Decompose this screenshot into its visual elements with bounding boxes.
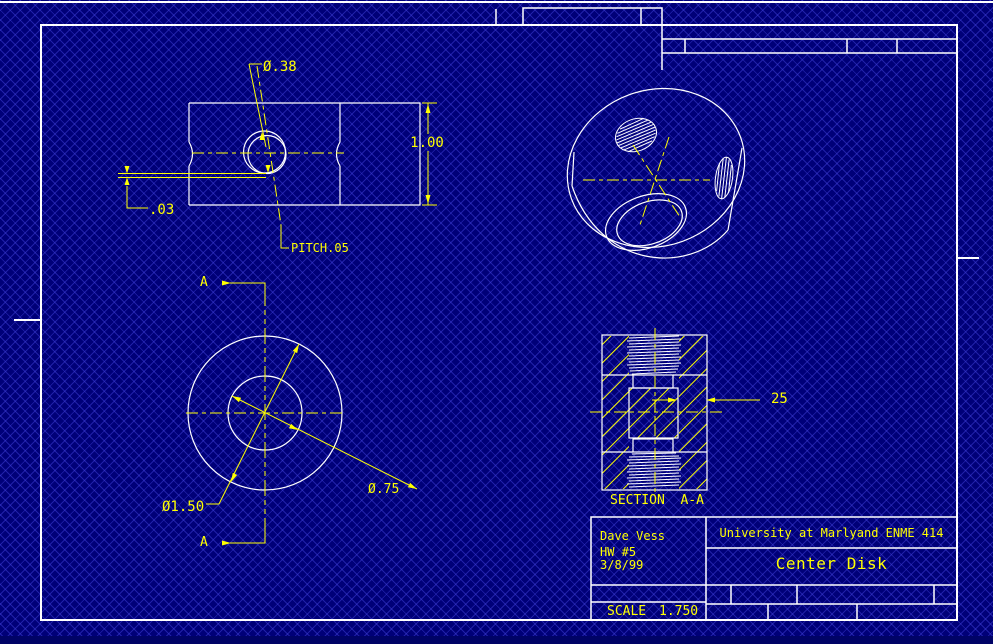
bore-dia-dim <box>232 396 417 489</box>
dim-front-hole-dia: Ø.38 <box>263 60 297 74</box>
dim-plan-bore-dia: Ø.75 <box>368 483 399 496</box>
section-threads-top <box>627 336 681 374</box>
outer-dia-dim <box>206 344 299 504</box>
section-counterbore-bottom <box>633 439 673 452</box>
iso-front-face <box>545 64 767 272</box>
iso-threaded-hole-top <box>611 113 661 157</box>
height-dim-lines <box>422 103 437 205</box>
front-slant-centerline <box>257 66 281 225</box>
iso-threaded-hole-right <box>713 156 736 200</box>
plan-annotations <box>186 281 417 546</box>
cut-label-bottom: A <box>200 536 208 549</box>
iso-geometry <box>545 64 767 272</box>
section-threads-bottom <box>627 453 681 487</box>
iso-centerlines <box>583 137 710 225</box>
title-block-author: Dave Vess <box>600 530 665 542</box>
offset-dim-lines <box>118 174 266 209</box>
top-strip-box <box>523 8 662 25</box>
dim-front-height: 1.00 <box>405 136 449 150</box>
cut-label-top: A <box>200 276 208 289</box>
drawing-canvas <box>0 0 993 644</box>
front-outline <box>189 103 420 205</box>
dim-plan-outer-dia: Ø1.50 <box>162 500 204 514</box>
title-block-drawing-title: Center Disk <box>706 556 957 572</box>
dim-front-pitch: PITCH.05 <box>291 242 349 254</box>
dim-section-wall: 25 <box>771 392 788 406</box>
section-counterbore-top <box>633 375 673 388</box>
title-block-assignment: HW #5 <box>600 546 636 558</box>
front-view-geometry <box>189 103 420 205</box>
drawing-sheet: Ø.38 1.00 .03 PITCH.05 A A Ø1.50 Ø.75 25… <box>0 0 993 644</box>
iso-bore <box>598 183 695 261</box>
front-arrowheads <box>125 104 431 204</box>
section-view <box>590 328 760 497</box>
front-view <box>118 64 437 248</box>
title-block-date: 3/8/99 <box>600 559 643 571</box>
pitch-leader <box>281 225 289 248</box>
title-block-scale-value: 1.750 <box>659 605 698 618</box>
title-block-organization: University at Marlyand ENME 414 <box>706 527 957 539</box>
bottom-strip <box>0 636 993 644</box>
title-block-scale-label: SCALE <box>607 605 646 618</box>
iso-view <box>545 64 767 272</box>
plan-view <box>186 281 417 546</box>
revision-block-lines <box>662 25 957 70</box>
dim-front-offset: .03 <box>149 203 174 217</box>
front-view-annotations <box>118 64 437 248</box>
section-title: SECTION A-A <box>610 494 704 507</box>
